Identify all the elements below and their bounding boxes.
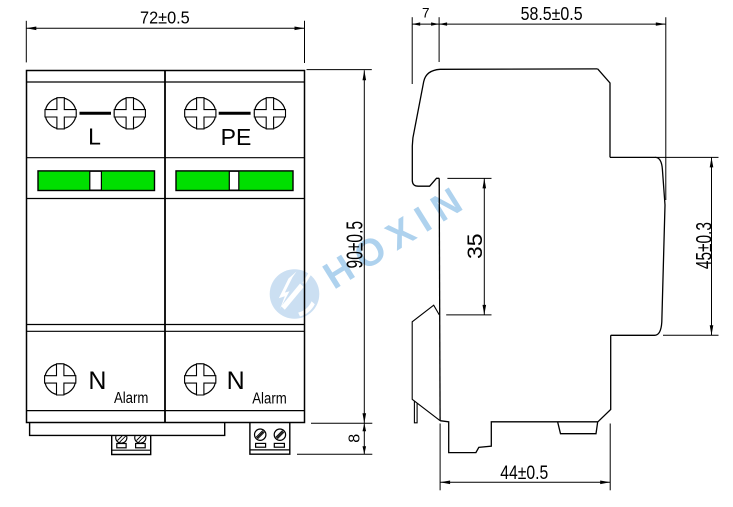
svg-text:45±0.3: 45±0.3 xyxy=(692,222,717,269)
svg-text:7: 7 xyxy=(422,5,430,20)
svg-text:N: N xyxy=(227,367,245,395)
svg-text:8: 8 xyxy=(347,434,364,443)
svg-text:72±0.5: 72±0.5 xyxy=(140,8,190,28)
svg-text:44±0.5: 44±0.5 xyxy=(500,463,548,484)
svg-text:35: 35 xyxy=(464,233,487,259)
svg-text:L: L xyxy=(88,123,101,149)
svg-text:58.5±0.5: 58.5±0.5 xyxy=(521,4,583,24)
svg-text:PE: PE xyxy=(221,124,252,150)
svg-text:Alarm: Alarm xyxy=(114,390,149,407)
svg-text:90±0.5: 90±0.5 xyxy=(342,221,368,269)
svg-text:N: N xyxy=(88,367,106,395)
svg-text:Alarm: Alarm xyxy=(252,391,287,408)
